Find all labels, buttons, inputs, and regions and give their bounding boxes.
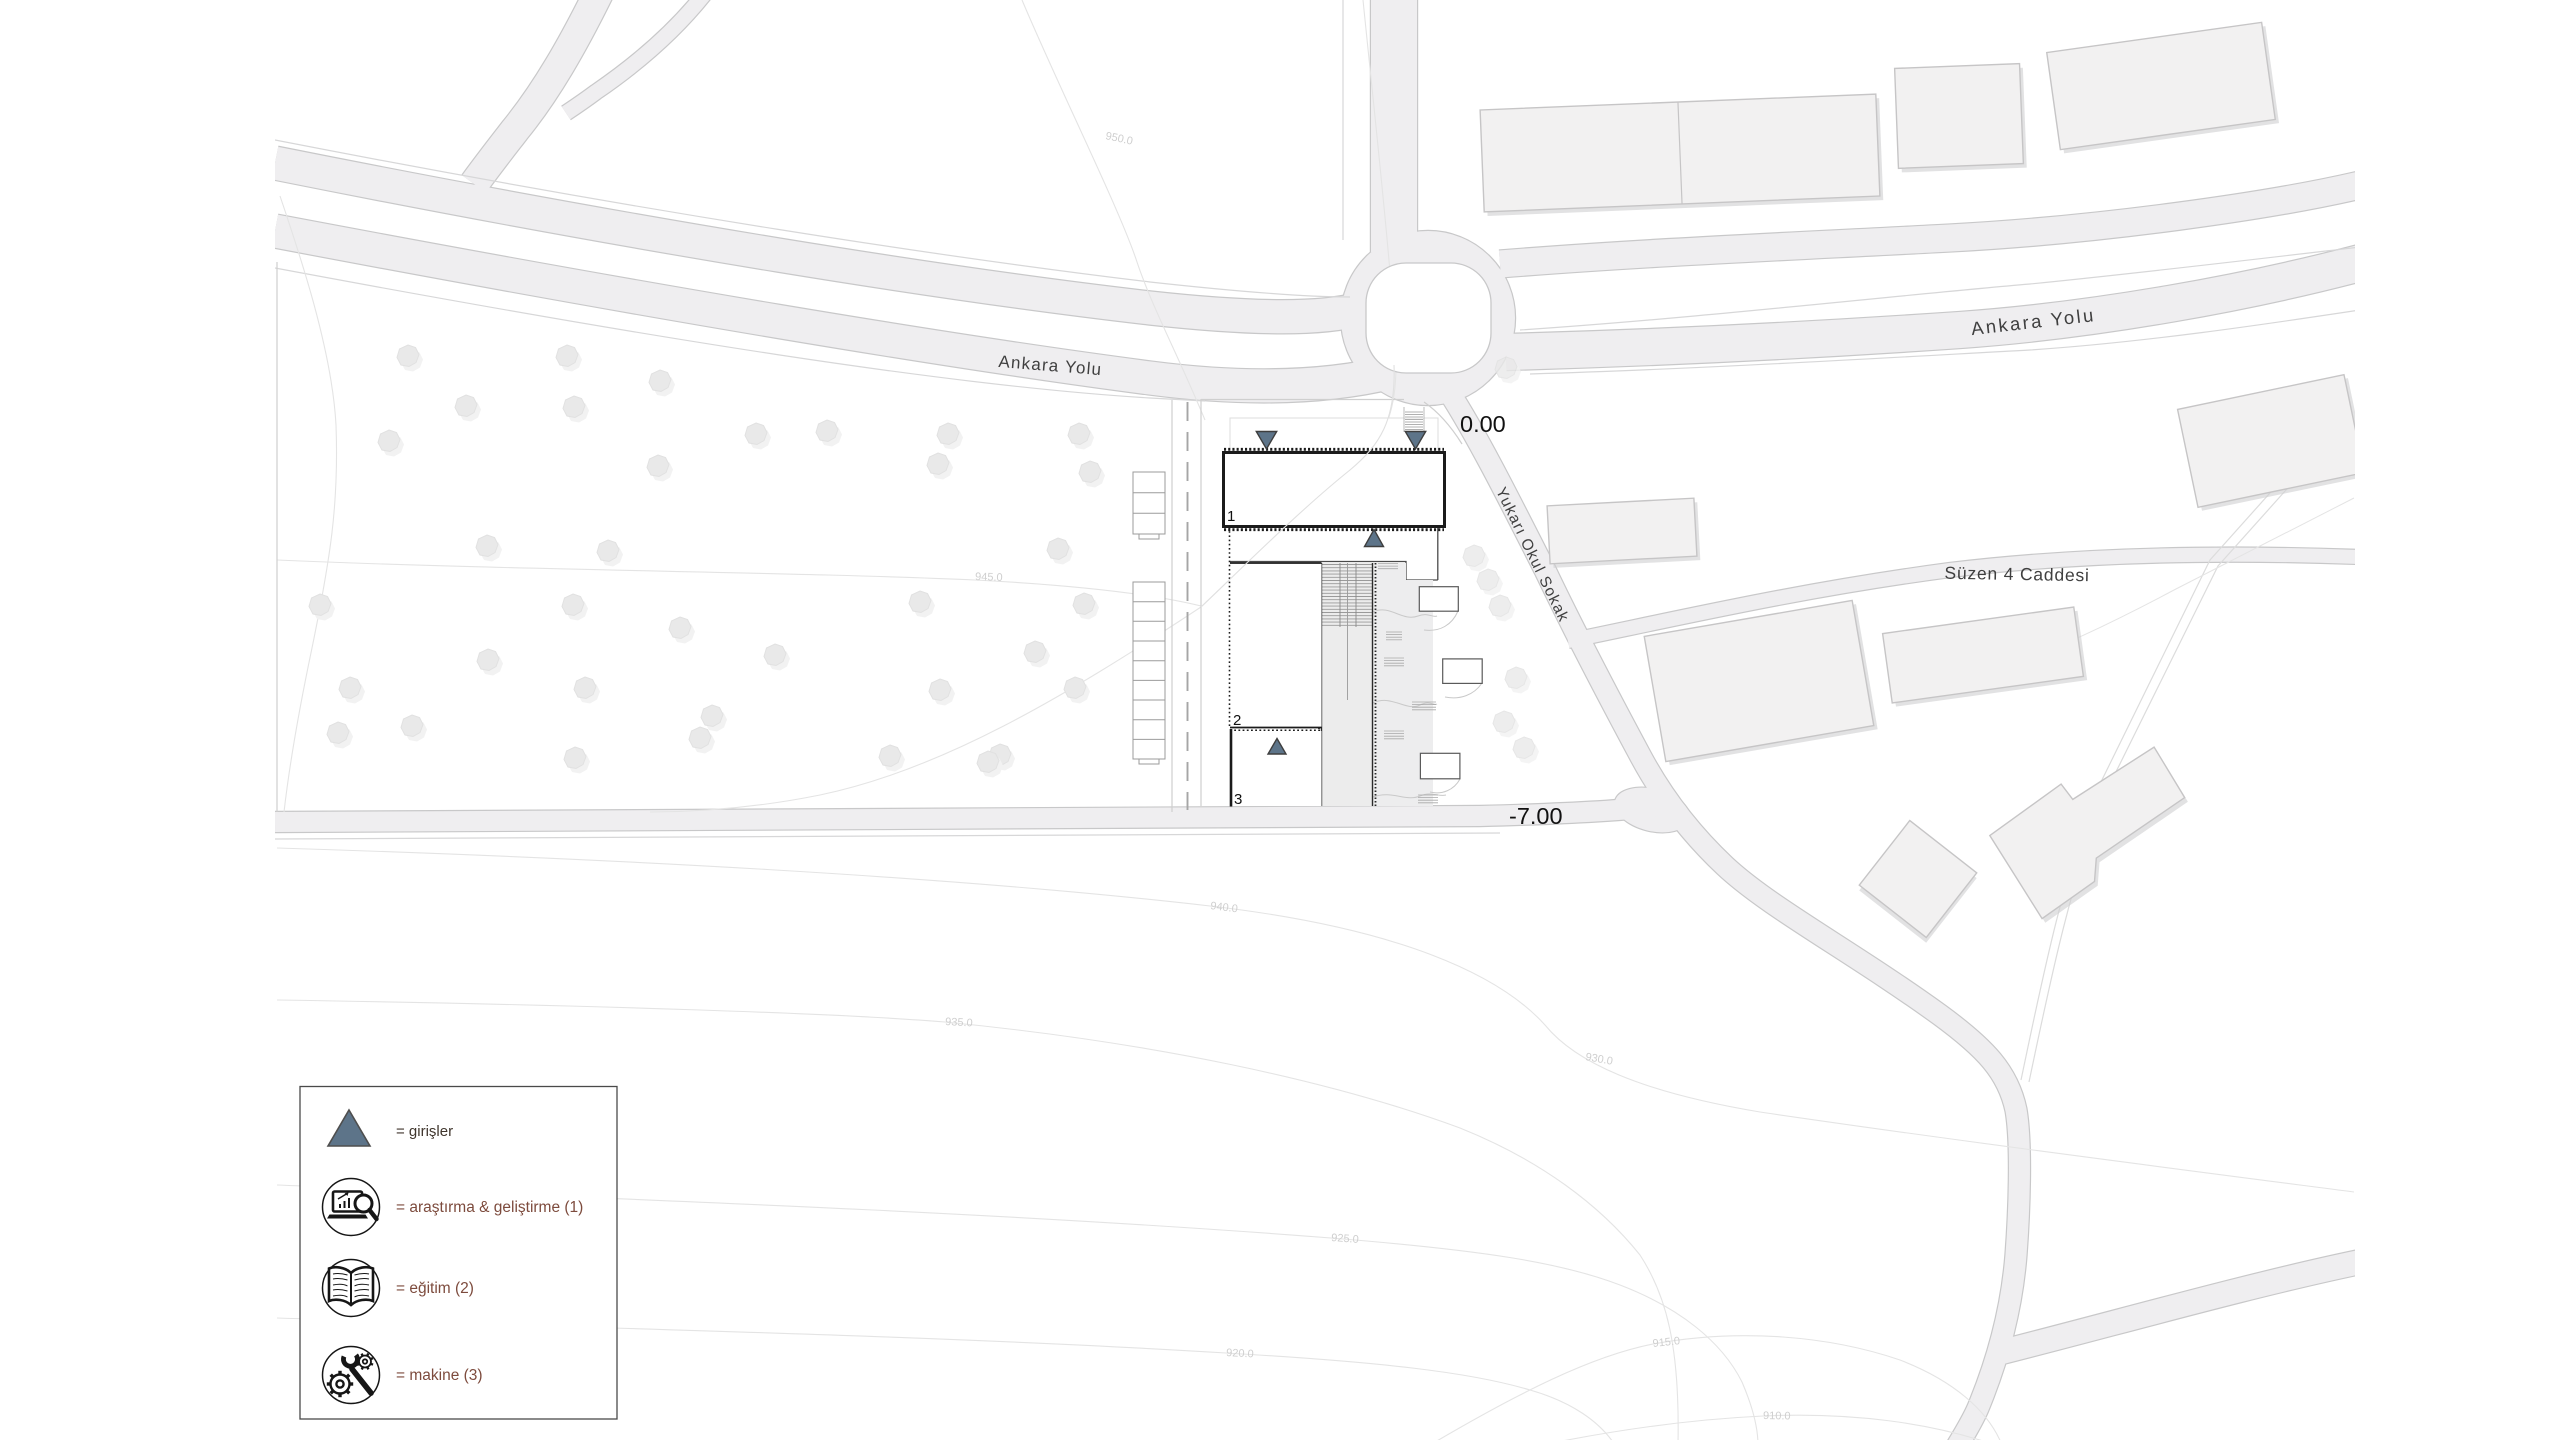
svg-text:2: 2 — [1233, 712, 1241, 729]
svg-text:935.0: 935.0 — [945, 1016, 973, 1029]
svg-text:3: 3 — [1234, 791, 1242, 808]
svg-text:= araştırma & geliştirme (1): = araştırma & geliştirme (1) — [396, 1199, 583, 1216]
svg-text:910.0: 910.0 — [1763, 1410, 1791, 1422]
svg-text:= girişler: = girişler — [396, 1123, 453, 1140]
svg-text:= makine (3): = makine (3) — [396, 1367, 483, 1384]
svg-text:0.00: 0.00 — [1460, 411, 1506, 437]
svg-text:945.0: 945.0 — [975, 571, 1003, 584]
svg-text:925.0: 925.0 — [1331, 1232, 1359, 1246]
svg-text:Süzen 4 Caddesi: Süzen 4 Caddesi — [1944, 563, 2090, 586]
svg-text:920.0: 920.0 — [1226, 1347, 1254, 1360]
svg-text:-7.00: -7.00 — [1509, 803, 1563, 829]
svg-text:= eğitim (2): = eğitim (2) — [396, 1280, 474, 1297]
svg-text:1: 1 — [1227, 508, 1235, 525]
